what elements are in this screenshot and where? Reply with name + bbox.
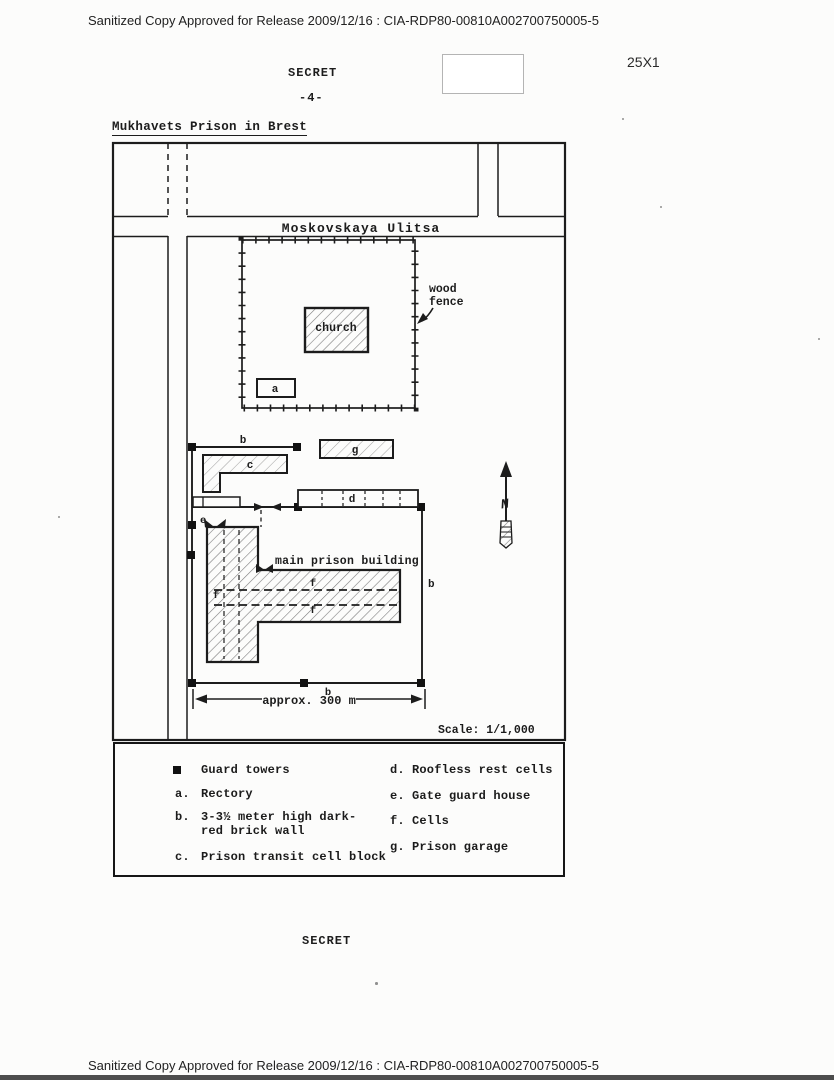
scan-speckle <box>818 338 820 340</box>
legend-key-f: f. <box>390 814 405 828</box>
cells-label: f <box>310 578 316 590</box>
legend-key-c: c. <box>175 850 190 864</box>
legend-garage: Prison garage <box>412 840 508 854</box>
cells-label: f <box>213 590 219 602</box>
scan-speckle <box>622 118 624 120</box>
gate-arrow-left <box>271 503 281 511</box>
guard-tower-marker <box>188 443 196 451</box>
sanitization-footer: Sanitized Copy Approved for Release 2009… <box>88 1058 599 1073</box>
guard-tower-marker <box>187 551 195 559</box>
church-compound: church a <box>242 240 415 408</box>
guard-tower-marker <box>300 679 308 687</box>
scan-speckle <box>375 982 378 985</box>
wood-fence-label-2: fence <box>429 296 464 309</box>
north-arrow: N <box>500 461 512 548</box>
legend-rest-cells: Roofless rest cells <box>412 763 553 777</box>
legend-key-g: g. <box>390 840 405 854</box>
guard-tower-marker <box>188 679 196 687</box>
legend-brick-wall-line2: red brick wall <box>201 824 305 838</box>
north-label: N <box>500 497 511 513</box>
legend-key-d: d. <box>390 763 405 777</box>
dimension-arrow-right <box>411 695 423 704</box>
legend-brick-wall-line1: 3-3½ meter high dark- <box>201 810 356 824</box>
wall-label-top: b <box>240 435 247 447</box>
street-name-label: Moskovskaya Ulitsa <box>282 221 440 236</box>
scan-speckle <box>660 206 662 208</box>
legend-key-a: a. <box>175 787 190 801</box>
wood-fence-annotation: wood fence <box>417 283 464 324</box>
main-building-label: main prison building <box>275 555 419 568</box>
rest-cells-label: d <box>349 494 356 506</box>
legend-key-e: e. <box>390 789 405 803</box>
document-page: Sanitized Copy Approved for Release 2009… <box>0 0 834 1080</box>
garage-label: g <box>352 445 359 457</box>
scan-edge-bar <box>0 1075 834 1080</box>
legend-gate-house: Gate guard house <box>412 789 530 803</box>
cells-label: f <box>310 605 316 617</box>
legend-transit-block: Prison transit cell block <box>201 850 386 864</box>
site-map: Moskovskaya Ulitsa church a wood fence b… <box>0 0 834 1080</box>
legend-guard-towers: Guard towers <box>201 763 290 777</box>
dimension-label: approx. 300 m <box>262 694 356 708</box>
legend-rectory: Rectory <box>201 787 253 801</box>
gate-arrow-right <box>254 503 264 511</box>
transit-cell-block <box>203 455 287 492</box>
gate-guard-house <box>188 521 196 529</box>
wall-label-right: b <box>428 579 435 591</box>
guard-tower-marker <box>417 679 425 687</box>
north-arrow-feather <box>500 521 512 548</box>
wall-annex <box>193 497 240 507</box>
scan-speckle <box>58 516 60 518</box>
guard-tower-legend-marker <box>173 766 181 774</box>
guard-tower-marker <box>293 443 301 451</box>
legend-key-b: b. <box>175 810 190 824</box>
transit-block-label: c <box>247 460 254 472</box>
legend-cells: Cells <box>412 814 449 828</box>
wood-fence-label-1: wood <box>429 283 457 296</box>
rectory-label: a <box>272 384 279 396</box>
main-prison-building <box>207 527 400 662</box>
entrance-arrow <box>217 519 226 528</box>
north-arrow-head <box>500 461 512 477</box>
dimension-arrow-left <box>195 695 207 704</box>
scale-label: Scale: 1/1,000 <box>438 724 535 737</box>
wood-fence-arrow-head <box>417 313 428 324</box>
church-label: church <box>315 322 357 335</box>
entrance-arrow <box>204 519 213 528</box>
classification-bottom: SECRET <box>302 934 351 948</box>
legend-box: Guard towers a. Rectory b. 3-3½ meter hi… <box>113 742 565 877</box>
